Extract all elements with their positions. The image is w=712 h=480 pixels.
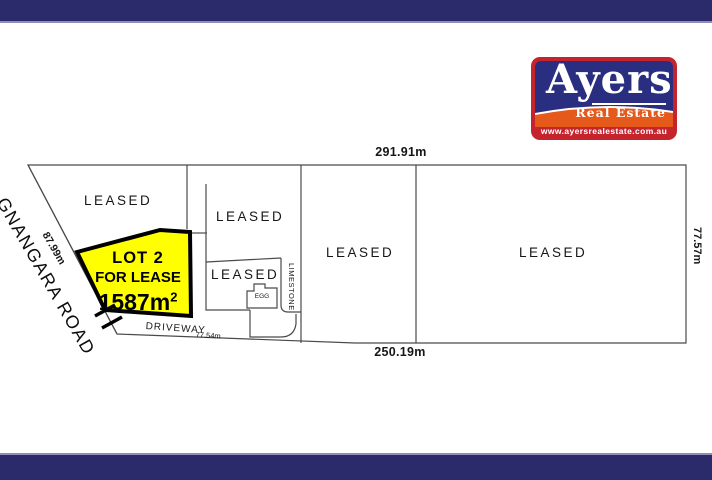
lot2-area: 1587m2 xyxy=(90,289,186,316)
lot2-subtitle: FOR LEASE xyxy=(90,269,186,286)
parcel-label-middle-top: LEASED xyxy=(216,209,284,224)
ayers-logo-field: Ayers Real Estate xyxy=(535,61,673,127)
logo-tagline-text: Real Estate xyxy=(575,105,666,120)
lot2-area-value: 1587m xyxy=(99,289,171,315)
driveway-curl xyxy=(250,310,296,337)
building-label: EGG xyxy=(249,293,275,300)
parcel-label-far-right: LEASED xyxy=(519,245,587,260)
lot2-title: LOT 2 xyxy=(90,249,186,268)
ayers-logo: Ayers Real Estate www.ayersrealestate.co… xyxy=(531,57,677,140)
parcel-label-center-right: LEASED xyxy=(326,245,394,260)
bottom-boundary-measurement: 250.19m xyxy=(370,345,430,359)
driveway-measurement: 77.54m xyxy=(195,330,221,341)
limestone-label: LIMESTONE xyxy=(287,263,296,311)
parcel-label-top-left: LEASED xyxy=(84,193,152,208)
top-boundary-measurement: 291.91m xyxy=(371,145,431,159)
flyer-page: GNANGARA ROAD 87.99m 291.91m 250.19m 77.… xyxy=(0,0,712,480)
lot2-text-block: LOT 2 FOR LEASE 1587m2 xyxy=(90,249,186,316)
logo-website-text: www.ayersrealestate.com.au xyxy=(531,126,677,136)
logo-brand-text: Ayers xyxy=(546,61,673,102)
right-boundary-measurement: 77.57m xyxy=(691,227,703,264)
lot2-area-superscript: 2 xyxy=(170,289,177,304)
crossover-mark-2 xyxy=(102,317,122,328)
parcel-label-middle-lower: LEASED xyxy=(211,267,279,282)
lower-parcel-top xyxy=(206,258,281,262)
